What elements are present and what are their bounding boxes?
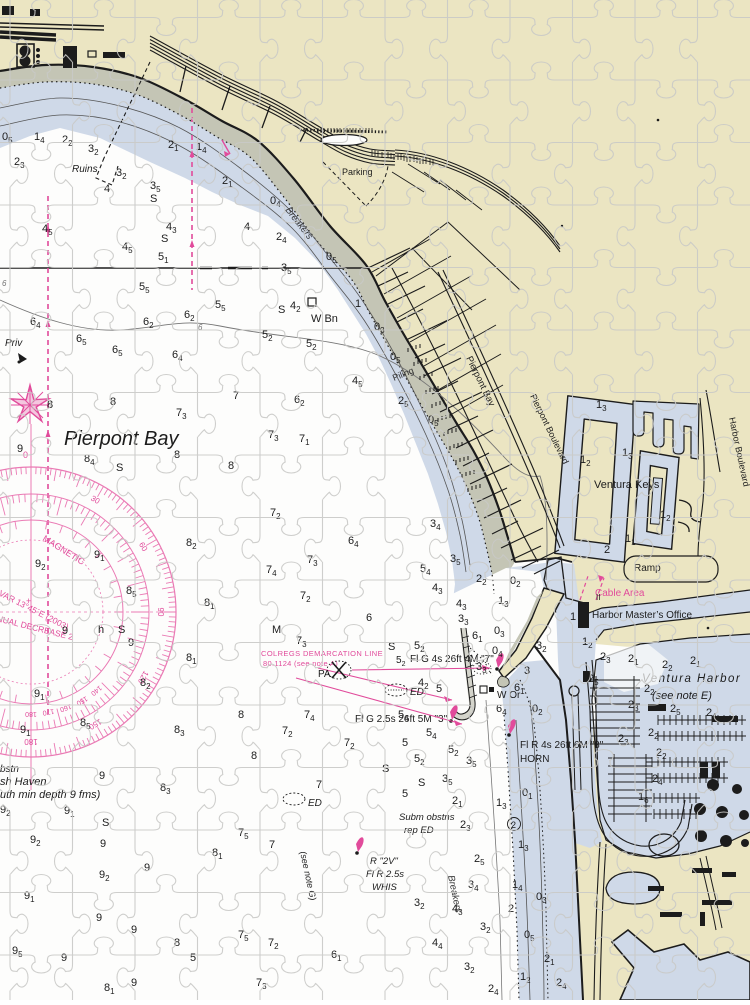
svg-text:S: S	[161, 233, 168, 245]
svg-text:S: S	[150, 193, 157, 205]
svg-text:180: 180	[24, 737, 38, 746]
svg-text:5: 5	[402, 788, 408, 800]
svg-text:Ruins: Ruins	[72, 164, 98, 175]
svg-text:6: 6	[2, 279, 7, 288]
svg-text:S: S	[102, 817, 109, 829]
svg-text:Ventura Keys: Ventura Keys	[594, 479, 660, 491]
svg-text:8: 8	[228, 460, 234, 472]
svg-text:8: 8	[174, 937, 180, 949]
svg-text:S: S	[116, 462, 123, 474]
svg-text:5: 5	[190, 952, 196, 964]
svg-text:Subm obstns: Subm obstns	[399, 812, 455, 823]
svg-text:sh Haven: sh Haven	[0, 776, 46, 788]
svg-text:7: 7	[316, 779, 322, 791]
svg-text:9: 9	[96, 912, 102, 924]
svg-text:Fl R 4s 26ft 6M "8": Fl R 4s 26ft 6M "8"	[520, 740, 604, 751]
svg-text:2: 2	[511, 820, 516, 830]
svg-text:+: +	[26, 596, 31, 606]
svg-text:9: 9	[100, 838, 106, 850]
svg-text:4: 4	[104, 183, 110, 195]
svg-text:S: S	[382, 763, 389, 775]
svg-text:5: 5	[436, 683, 442, 695]
svg-text:1: 1	[355, 298, 361, 310]
svg-text:2: 2	[508, 903, 514, 915]
svg-text:6: 6	[198, 323, 203, 332]
svg-text:8: 8	[238, 709, 244, 721]
svg-text:M: M	[272, 624, 281, 636]
svg-text:180: 180	[25, 710, 37, 717]
svg-text:Harbor Master’s Office: Harbor Master’s Office	[592, 610, 692, 621]
svg-text:Pierpont Bay: Pierpont Bay	[64, 428, 180, 450]
svg-text:80.1124 (see note A): 80.1124 (see note A)	[263, 659, 338, 668]
svg-text:PA: PA	[318, 669, 331, 680]
svg-text:R "2V": R "2V"	[370, 856, 398, 867]
svg-text:9: 9	[17, 443, 23, 455]
svg-text:1: 1	[570, 611, 576, 623]
svg-text:7: 7	[269, 839, 275, 851]
svg-text:S: S	[278, 304, 285, 316]
svg-text:Cable Area: Cable Area	[595, 588, 645, 599]
svg-text:ED: ED	[308, 798, 322, 809]
svg-text:9: 9	[99, 770, 105, 782]
svg-text:3: 3	[524, 665, 530, 677]
svg-text:(see note E): (see note E)	[652, 690, 712, 702]
svg-text:2: 2	[604, 544, 610, 556]
svg-text:90: 90	[156, 608, 165, 617]
svg-text:9: 9	[61, 952, 67, 964]
svg-text:5: 5	[402, 737, 408, 749]
svg-text:uth min depth 9 fms): uth min depth 9 fms)	[0, 789, 101, 801]
svg-text:9: 9	[144, 862, 150, 874]
svg-text:S: S	[118, 624, 125, 636]
svg-text:II: II	[596, 593, 600, 602]
svg-text:HORN: HORN	[520, 754, 549, 765]
svg-text:Priv: Priv	[5, 338, 23, 349]
svg-text:S: S	[418, 777, 425, 789]
svg-text:9: 9	[62, 625, 68, 637]
svg-text:8: 8	[251, 750, 257, 762]
svg-text:6: 6	[366, 612, 372, 624]
svg-text:W Bn: W Bn	[311, 313, 338, 325]
